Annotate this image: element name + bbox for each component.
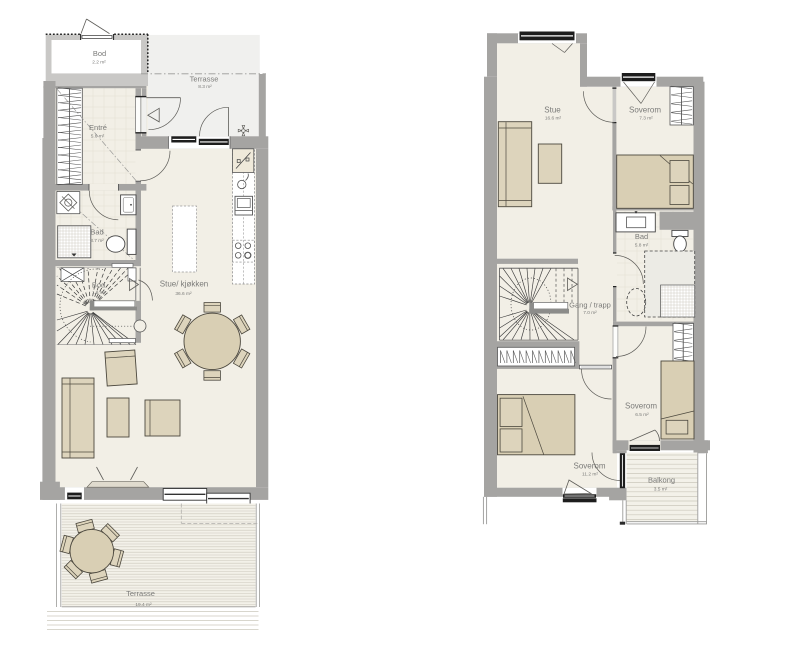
svg-text:3.5 m²: 3.5 m²	[654, 486, 668, 492]
svg-text:Bad: Bad	[635, 232, 648, 241]
svg-text:Soverom: Soverom	[573, 461, 605, 470]
svg-text:Bad: Bad	[90, 228, 103, 237]
svg-text:7.0 m²: 7.0 m²	[583, 310, 597, 316]
svg-text:Entré: Entré	[89, 123, 107, 132]
svg-text:Stue: Stue	[544, 106, 561, 115]
svg-text:5.8 m²: 5.8 m²	[635, 242, 649, 248]
svg-text:3.7 m²: 3.7 m²	[90, 238, 104, 244]
svg-text:Soverom: Soverom	[629, 105, 661, 114]
svg-text:11.2 m²: 11.2 m²	[582, 472, 598, 478]
svg-text:Terrasse: Terrasse	[190, 74, 219, 83]
svg-text:Balkong: Balkong	[648, 476, 675, 485]
svg-text:7.3 m²: 7.3 m²	[639, 115, 653, 121]
svg-text:19.4 m²: 19.4 m²	[135, 602, 152, 608]
svg-text:Gang / trapp: Gang / trapp	[569, 300, 611, 309]
svg-text:16.6 m²: 16.6 m²	[545, 115, 562, 121]
svg-text:Soverom: Soverom	[625, 402, 657, 411]
svg-text:Bod: Bod	[93, 49, 106, 58]
svg-text:1.9 m²: 1.9 m²	[92, 290, 105, 295]
svg-text:8.3 m²: 8.3 m²	[198, 84, 212, 90]
svg-text:5.6 m²: 5.6 m²	[91, 134, 105, 140]
svg-text:Terrasse: Terrasse	[126, 589, 155, 598]
svg-text:Bod: Bod	[92, 281, 105, 290]
svg-text:Stue/ kjøkken: Stue/ kjøkken	[160, 280, 208, 289]
svg-text:6.5 m²: 6.5 m²	[635, 412, 649, 418]
svg-text:2.2 m²: 2.2 m²	[92, 60, 106, 66]
svg-text:36.6 m²: 36.6 m²	[175, 291, 192, 297]
